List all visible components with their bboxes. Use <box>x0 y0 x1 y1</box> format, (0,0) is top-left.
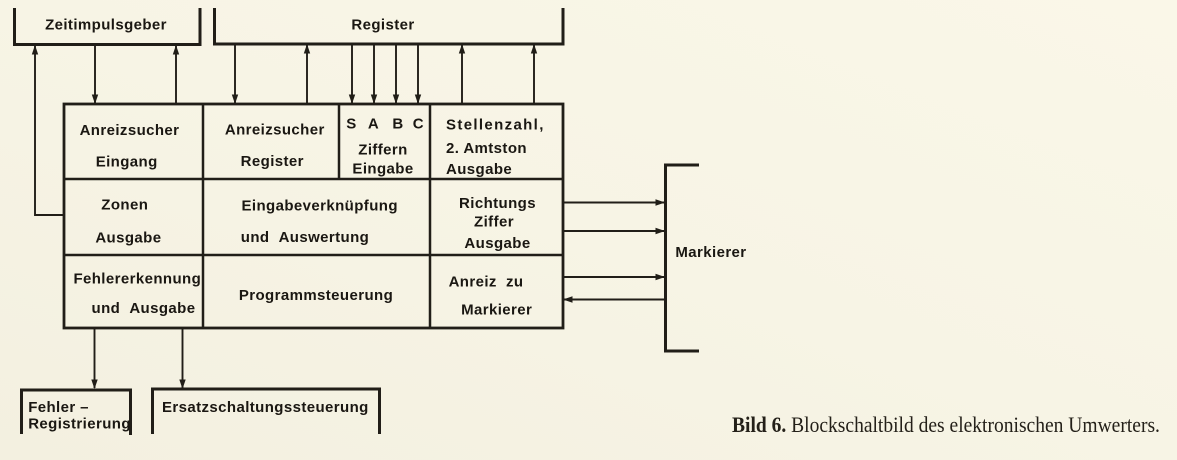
svg-text:S: S <box>346 116 356 133</box>
svg-text:Markierer: Markierer <box>675 244 746 261</box>
svg-text:Fehlererkennung: Fehlererkennung <box>73 271 201 288</box>
svg-text:Ausgabe: Ausgabe <box>95 230 161 247</box>
svg-text:2. Amtston: 2. Amtston <box>446 140 527 157</box>
svg-text:Anreizsucher: Anreizsucher <box>225 122 325 139</box>
svg-text:Anreizsucher: Anreizsucher <box>80 122 180 139</box>
svg-text:Ersatzschaltungssteuerung: Ersatzschaltungssteuerung <box>162 399 369 416</box>
svg-text:Programmsteuerung: Programmsteuerung <box>239 287 393 304</box>
svg-text:B: B <box>392 116 403 133</box>
svg-text:Eingang: Eingang <box>96 154 158 171</box>
svg-text:A: A <box>368 116 379 133</box>
svg-text:und Ausgabe: und Ausgabe <box>92 300 196 317</box>
svg-text:Registrierung: Registrierung <box>28 416 131 433</box>
svg-text:Eingabeverknüpfung: Eingabeverknüpfung <box>242 198 398 215</box>
svg-text:Register: Register <box>241 153 304 170</box>
svg-text:C: C <box>413 116 424 133</box>
svg-text:Register: Register <box>351 17 414 34</box>
svg-text:Richtungs: Richtungs <box>459 195 536 212</box>
svg-text:Stellenzahl,: Stellenzahl, <box>446 116 545 133</box>
svg-text:und Auswertung: und Auswertung <box>241 229 370 246</box>
svg-text:Ziffer: Ziffer <box>474 214 514 231</box>
svg-text:Markierer: Markierer <box>461 302 532 319</box>
svg-text:Eingabe: Eingabe <box>352 160 413 177</box>
svg-text:Fehler –: Fehler – <box>28 399 89 416</box>
svg-text:Ausgabe: Ausgabe <box>446 161 512 178</box>
svg-text:Ziffern: Ziffern <box>358 142 407 159</box>
svg-text:Anreiz zu: Anreiz zu <box>449 273 524 290</box>
svg-text:Bild 6. Blockschaltbild des el: Bild 6. Blockschaltbild des elektronisch… <box>732 413 1160 437</box>
svg-text:Zeitimpulsgeber: Zeitimpulsgeber <box>45 17 167 34</box>
svg-text:Ausgabe: Ausgabe <box>464 235 530 252</box>
svg-text:Zonen: Zonen <box>101 197 148 214</box>
